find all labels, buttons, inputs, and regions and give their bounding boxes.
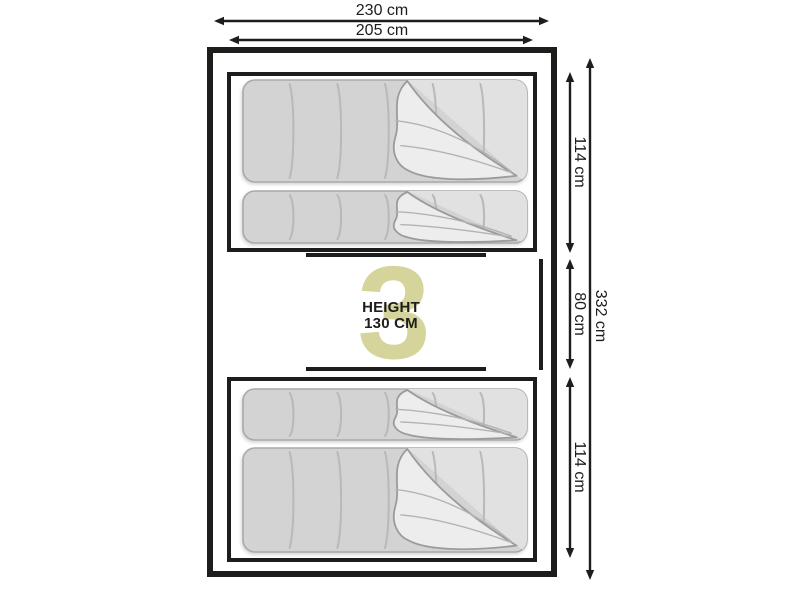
height-label-line1: HEIGHT — [362, 300, 420, 316]
width-inner-label: 205 cm — [356, 23, 408, 39]
tent-floorplan-diagram: 3 HEIGHT 130 CM 230 cm 205 cm 114 cm 80 … — [0, 0, 800, 600]
section-middle-label: 80 cm — [571, 292, 587, 336]
divider-line-right — [539, 259, 543, 370]
sleeping-compartment-bottom — [227, 377, 537, 562]
section-top-label: 114 cm — [571, 136, 587, 187]
width-outer-label: 230 cm — [356, 3, 408, 19]
height-label: HEIGHT 130 CM — [362, 300, 420, 332]
sleeping-compartment-top — [227, 72, 537, 252]
section-bottom-label: 114 cm — [571, 441, 587, 492]
height-total-label: 332 cm — [592, 290, 608, 342]
height-label-line2: 130 CM — [362, 316, 420, 332]
